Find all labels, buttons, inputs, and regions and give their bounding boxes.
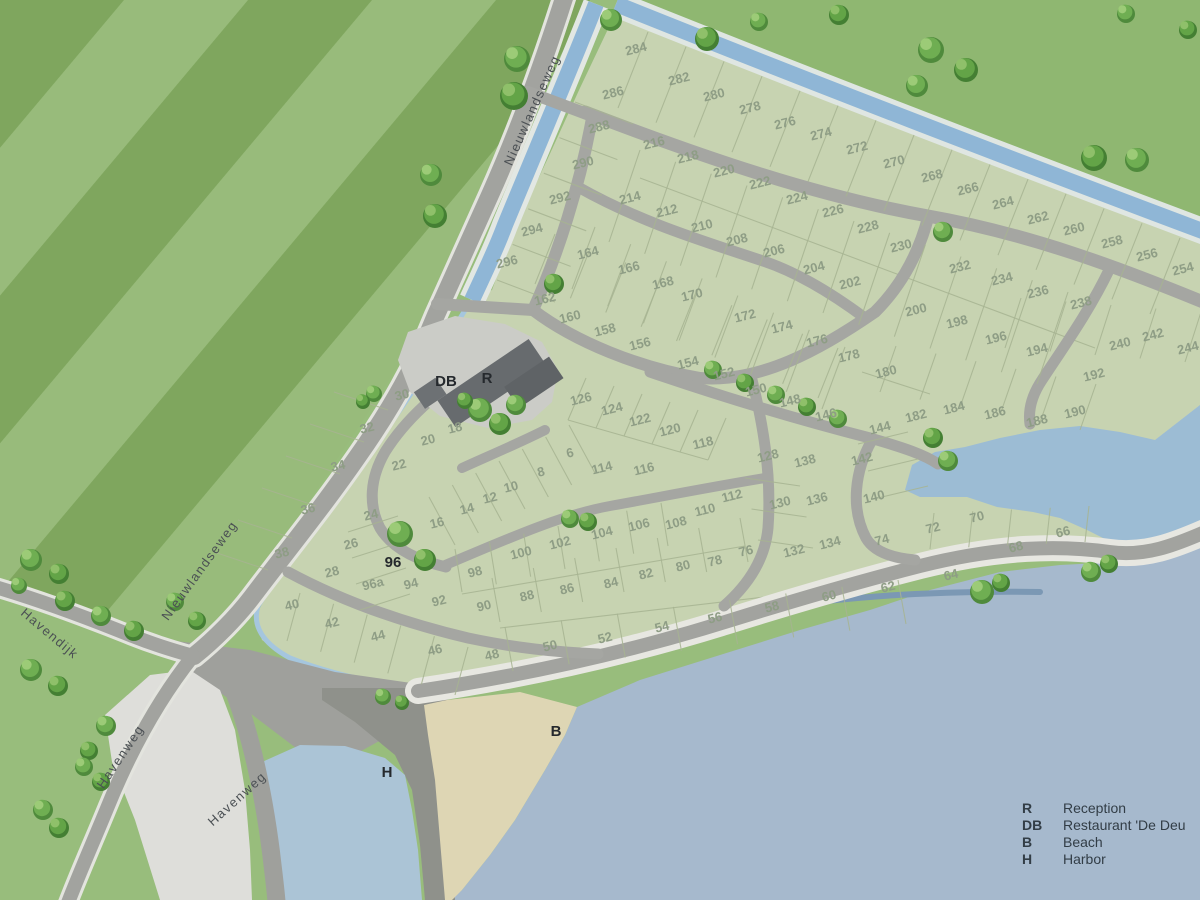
- tree-icon: [414, 549, 436, 571]
- legend-key-restaurant: DB: [1022, 817, 1042, 833]
- tree-icon: [906, 75, 928, 97]
- legend-key-beach: B: [1022, 834, 1032, 850]
- tree-icon: [954, 58, 978, 82]
- tree-icon: [695, 27, 719, 51]
- legend-label-restaurant: Restaurant 'De Deu: [1063, 817, 1186, 833]
- tree-icon: [500, 82, 528, 110]
- tree-icon: [420, 164, 442, 186]
- tree-icon: [20, 659, 42, 681]
- plot96-marker: 96: [385, 554, 402, 571]
- legend-label-harbor: Harbor: [1063, 851, 1106, 867]
- legend-label-reception: Reception: [1063, 800, 1126, 816]
- tree-icon: [387, 521, 413, 547]
- restaurant-marker: DB: [435, 373, 457, 390]
- tree-icon: [600, 9, 622, 31]
- legend-key-harbor: H: [1022, 851, 1032, 867]
- site-map: 2842822802782762742722702682662642622602…: [0, 0, 1200, 900]
- map-canvas: 2842822802782762742722702682662642622602…: [0, 0, 1200, 900]
- tree-icon: [1125, 148, 1149, 172]
- tree-icon: [20, 549, 42, 571]
- legend-label-beach: Beach: [1063, 834, 1103, 850]
- tree-icon: [1081, 145, 1107, 171]
- tree-icon: [489, 413, 511, 435]
- legend-key-reception: R: [1022, 800, 1032, 816]
- reception-marker: R: [482, 370, 493, 387]
- road-entrance-south: [437, 304, 533, 310]
- harbor-marker: H: [382, 764, 393, 781]
- beach-marker: B: [551, 723, 562, 740]
- tree-icon: [504, 46, 530, 72]
- tree-icon: [423, 204, 447, 228]
- tree-icon: [918, 37, 944, 63]
- tree-icon: [970, 580, 994, 604]
